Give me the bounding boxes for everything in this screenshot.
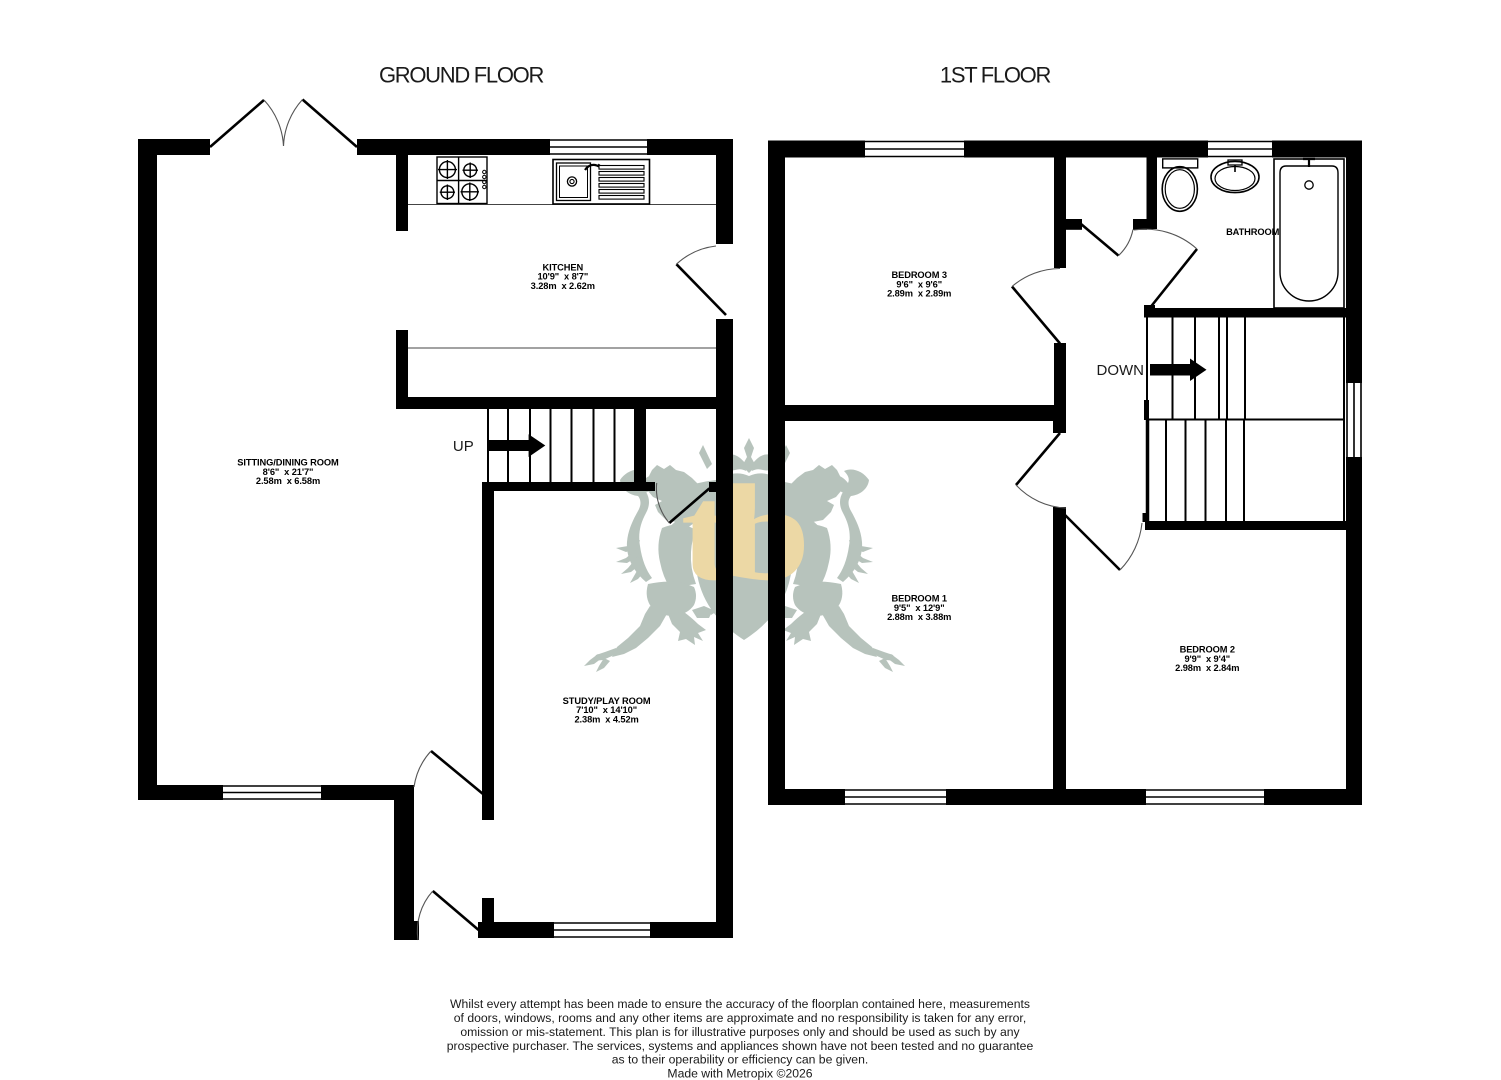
svg-text:1ST FLOOR: 1ST FLOOR <box>940 63 1051 88</box>
svg-text:of doors, windows, rooms and a: of doors, windows, rooms and any other i… <box>454 1011 1026 1025</box>
svg-text:3.28m x 2.62m: 3.28m x 2.62m <box>531 281 595 291</box>
svg-text:2.38m x 4.52m: 2.38m x 4.52m <box>574 714 638 724</box>
svg-text:tb: tb <box>681 456 804 609</box>
svg-text:2.98m x 2.84m: 2.98m x 2.84m <box>1175 663 1239 673</box>
svg-text:DOWN: DOWN <box>1097 362 1145 379</box>
svg-text:UP: UP <box>453 438 474 455</box>
svg-text:Made with Metropix ©2026: Made with Metropix ©2026 <box>667 1067 812 1080</box>
svg-text:Whilst every attempt has been: Whilst every attempt has been made to en… <box>450 997 1030 1011</box>
svg-text:GROUND FLOOR: GROUND FLOOR <box>379 63 543 88</box>
svg-text:BATHROOM: BATHROOM <box>1226 227 1280 237</box>
svg-text:2.58m x 6.58m: 2.58m x 6.58m <box>256 476 320 486</box>
svg-text:2.88m x 3.88m: 2.88m x 3.88m <box>887 612 951 622</box>
svg-text:omission or mis-statement. Thi: omission or mis-statement. This plan is … <box>460 1025 1020 1039</box>
svg-text:as to their operability or eff: as to their operability or efficiency ca… <box>612 1053 869 1067</box>
svg-text:prospective purchaser. The ser: prospective purchaser. The services, sys… <box>447 1039 1034 1053</box>
svg-text:2.89m x 2.89m: 2.89m x 2.89m <box>887 289 951 299</box>
